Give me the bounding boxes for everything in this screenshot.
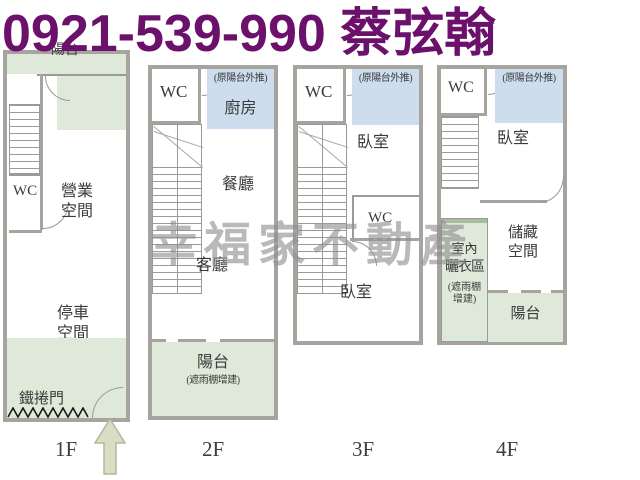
room-label-wc-top-3f: WC [305, 81, 332, 102]
floor-label-1f: 1F [55, 437, 77, 462]
door-arc [539, 176, 564, 203]
room-label-balcony-4f: 陽台 [488, 305, 563, 324]
agent-name: 蔡弦翰 [340, 5, 496, 63]
floorplan-4f: WC (原陽台外推) 臥室 室內 曬衣區 (遮雨棚 增建) 儲藏空間 陽台 [437, 65, 567, 345]
floor-label-2f: 2F [202, 437, 224, 462]
floorplan-1f: 陽台 WC 營業空間 停車空間 鐵捲門 [3, 50, 130, 422]
room-label-roller-door-1f: 鐵捲門 [19, 390, 64, 409]
room-label-bedroom-front-3f: 臥室 [357, 133, 389, 153]
note-drying-line1-4f: (遮雨棚 [441, 282, 488, 295]
stairs-4f [441, 116, 479, 189]
wall [198, 69, 201, 121]
note-pushed-out-4f: (原陽台外推) [495, 73, 563, 86]
room-label-storage-4f: 儲藏空間 [505, 224, 541, 262]
wall [9, 174, 40, 176]
floorplan-page: 陽台 WC 營業空間 停車空間 鐵捲門 WC (原陽台外推) 廚房 [0, 0, 640, 480]
room-label-wc-4f: WC [448, 78, 474, 98]
note-pushed-out-2f: (原陽台外推) [207, 73, 274, 86]
room-label-business-1f: 營業空間 [59, 182, 95, 222]
wall [480, 200, 547, 203]
contact-header: 0921-539-990 蔡弦翰 [2, 0, 640, 66]
entrance-arrow-icon [94, 419, 126, 475]
agency-watermark: 幸福家不動產 [150, 206, 474, 275]
floor-label-4f: 4F [496, 437, 518, 462]
wall [484, 69, 487, 113]
floorplan-3f: WC (原陽台外推) 臥室 WC 臥室 [293, 65, 423, 345]
note-pushed-out-3f: (原陽台外推) [352, 73, 419, 86]
room-label-bedroom-back-3f: 臥室 [340, 283, 372, 303]
note-drying-line2-4f: 增建) [441, 294, 488, 307]
room-label-wc-1f: WC [13, 182, 28, 201]
door-arc [45, 76, 70, 101]
wall [343, 69, 346, 121]
room-label-kitchen-2f: 廚房 [207, 99, 274, 119]
stairs-1f [9, 104, 40, 174]
room-label-bedroom-4f: 臥室 [497, 129, 529, 149]
phone-number: 0921-539-990 [2, 5, 326, 63]
room-label-balcony-2f: 陽台 [152, 353, 274, 373]
room-label-wc-2f: WC [160, 81, 187, 102]
room-label-dining-2f: 餐廳 [222, 175, 254, 195]
floor-label-3f: 3F [352, 437, 374, 462]
note-balcony-2f: (遮雨棚增建) [152, 375, 274, 388]
wall [352, 195, 419, 197]
wall [9, 230, 42, 233]
roller-door-zigzag-icon [7, 407, 89, 418]
